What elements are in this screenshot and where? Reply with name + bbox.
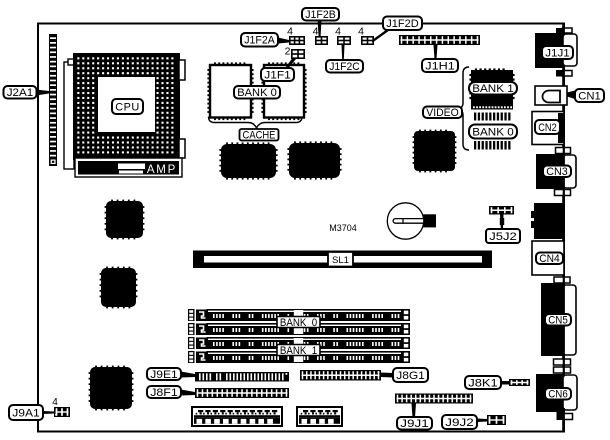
svg-text:J9A1: J9A1	[12, 407, 40, 419]
svg-text:4: 4	[313, 26, 319, 38]
svg-text:J1F2B: J1F2B	[305, 9, 336, 21]
svg-text:BANK 0: BANK 0	[472, 126, 514, 138]
svg-text:SL1: SL1	[332, 255, 349, 266]
svg-text:J8K1: J8K1	[468, 377, 498, 389]
svg-text:BANK 1: BANK 1	[280, 345, 317, 357]
svg-text:J1F2D: J1F2D	[386, 18, 419, 30]
svg-text:CPU: CPU	[115, 101, 140, 113]
svg-text:M3704: M3704	[329, 223, 357, 233]
svg-text:J1J1: J1J1	[545, 47, 570, 59]
svg-text:CN1: CN1	[578, 90, 601, 102]
svg-text:CN6: CN6	[548, 389, 568, 401]
svg-text:4: 4	[335, 26, 341, 38]
svg-text:J9J1: J9J1	[400, 418, 429, 430]
svg-text:J5J2: J5J2	[489, 231, 517, 243]
svg-text:BANK 1: BANK 1	[472, 83, 514, 95]
svg-text:BANK 0: BANK 0	[280, 317, 317, 329]
svg-text:CN3: CN3	[546, 166, 568, 178]
svg-text:CN2: CN2	[538, 122, 557, 134]
svg-text:J1F2A: J1F2A	[244, 35, 275, 47]
svg-text:4: 4	[52, 397, 58, 408]
svg-text:2: 2	[285, 46, 291, 58]
svg-text:4: 4	[358, 26, 364, 38]
svg-text:J9E1: J9E1	[150, 369, 178, 381]
svg-text:4: 4	[287, 26, 293, 38]
svg-text:J8G1: J8G1	[396, 370, 425, 382]
svg-text:J1H1: J1H1	[425, 60, 455, 72]
svg-text:J1F1: J1F1	[264, 69, 291, 81]
svg-text:J1F2C: J1F2C	[329, 61, 360, 73]
svg-text:CN5: CN5	[548, 315, 568, 327]
svg-text:CACHE: CACHE	[243, 130, 276, 142]
svg-text:J8F1: J8F1	[150, 387, 178, 399]
svg-text:BANK 0: BANK 0	[237, 87, 277, 99]
svg-text:AMP: AMP	[147, 164, 177, 176]
svg-text:VIDEO: VIDEO	[426, 107, 459, 119]
svg-text:J9J2: J9J2	[445, 417, 474, 429]
svg-text:CN4: CN4	[539, 253, 560, 265]
svg-text:J2A1: J2A1	[7, 87, 34, 99]
